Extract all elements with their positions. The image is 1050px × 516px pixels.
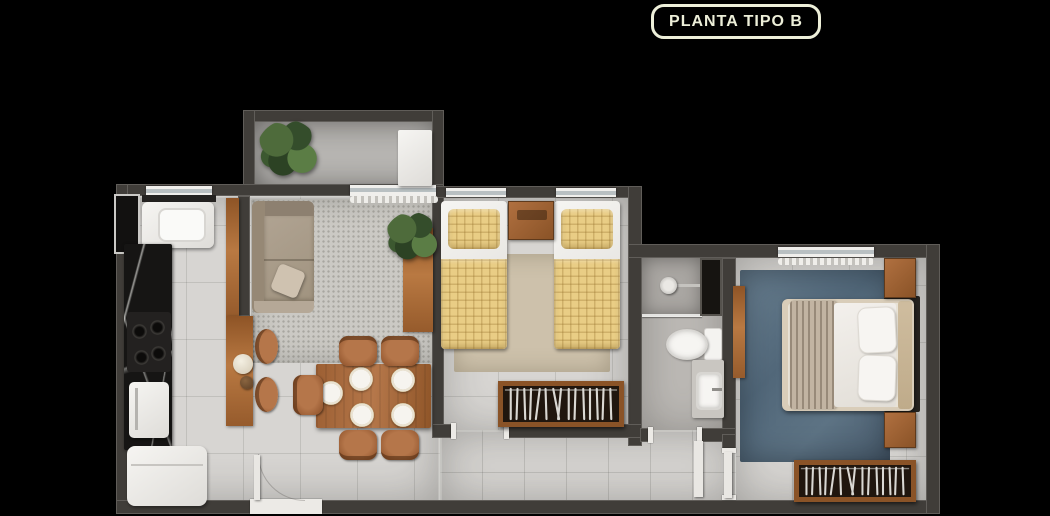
- vanity-faucet: [712, 388, 722, 391]
- kitchen-partial-wall: [238, 196, 250, 316]
- wardrobe-hangers-icon: [799, 465, 911, 497]
- cooktop-burner: [134, 350, 149, 365]
- decor-vase-small: [240, 376, 253, 389]
- single-bed-left: [441, 201, 507, 349]
- balcony-ac-unit: [398, 130, 432, 186]
- master-nightstand-bottom: [884, 412, 916, 448]
- bed-quilt: [554, 259, 620, 349]
- bathroom-door-leaf: [694, 441, 703, 497]
- bedroom2-nightstand: [508, 201, 554, 240]
- single-bed-right: [554, 201, 620, 349]
- bedroom2-window-right: [556, 188, 616, 197]
- dinner-plate: [391, 368, 415, 392]
- bed-quilt: [441, 259, 507, 349]
- shower-glass-line: [642, 314, 702, 317]
- living-room-plant: [384, 212, 440, 268]
- laundry-sink-basin: [158, 208, 206, 242]
- cooktop-burner: [150, 320, 165, 335]
- dining-chair: [339, 430, 377, 460]
- hallway-floor: [440, 430, 736, 502]
- sofa-armrest-bottom: [254, 301, 314, 313]
- dining-chair: [381, 430, 419, 460]
- living-curtain: [350, 196, 438, 203]
- nightstand-decor: [517, 210, 547, 220]
- dinner-plate: [391, 403, 415, 427]
- cooktop: [127, 312, 171, 372]
- master-nightstand-top: [884, 258, 916, 298]
- bedroom2-door-jamb-left: [451, 423, 456, 439]
- breakfast-bar-upper: [226, 198, 239, 316]
- bed-throw-blanket: [790, 301, 836, 409]
- cooktop-burner: [151, 346, 166, 361]
- master-door-leaf: [724, 452, 732, 498]
- plan-type-badge: PLANTA TIPO B: [651, 4, 821, 39]
- exterior-wall-bottom: [116, 500, 940, 514]
- entry-door-leaf: [254, 455, 260, 500]
- exterior-wall-right: [926, 244, 940, 514]
- balcony-sliding-door: [350, 185, 436, 196]
- floor-plan-canvas: PLANTA TIPO B: [0, 0, 1050, 516]
- master-bedroom-window: [778, 247, 874, 257]
- laundry-ledge: [142, 195, 216, 202]
- sofa: [252, 201, 314, 313]
- balcony-plant: [256, 120, 320, 186]
- bedroom2-window-left: [446, 188, 506, 197]
- master-side-desk: [733, 286, 745, 378]
- decor-vase-large: [233, 354, 253, 374]
- bed-pillow: [857, 354, 897, 401]
- dinner-plate: [349, 367, 373, 391]
- master-curtain: [778, 258, 874, 265]
- bed-pillow: [561, 209, 613, 249]
- toilet-bowl: [666, 329, 708, 360]
- dining-chair: [293, 375, 323, 415]
- kitchen-sink-handle: [135, 388, 138, 430]
- sofa-cushion-divider: [264, 259, 314, 261]
- bed-pillow: [448, 209, 500, 249]
- dinner-plate: [350, 403, 374, 427]
- service-shaft: [700, 258, 722, 316]
- dining-chair: [381, 336, 419, 366]
- bedroom2-bathroom-wall: [628, 186, 642, 446]
- vanity-basin: [696, 372, 722, 410]
- shower-head: [660, 277, 677, 294]
- entry-door: [250, 499, 322, 514]
- bar-stool: [255, 377, 278, 412]
- refrigerator-door-line: [131, 464, 203, 466]
- dining-chair: [339, 336, 377, 366]
- wardrobe-hangers-icon: [503, 386, 619, 422]
- bar-stool: [255, 329, 278, 364]
- bedroom2-wardrobe: [498, 381, 624, 427]
- cooktop-burner: [132, 324, 147, 339]
- bed-pillow: [857, 306, 897, 354]
- kitchen-window-top: [146, 186, 212, 195]
- plan-type-label: PLANTA TIPO B: [669, 13, 803, 31]
- balcony-wall-top: [243, 110, 444, 122]
- refrigerator: [127, 446, 207, 506]
- bathroom-door-jamb-left: [648, 427, 653, 443]
- master-wardrobe: [794, 460, 916, 502]
- bed-headboard: [898, 301, 912, 409]
- master-double-bed: [782, 299, 914, 411]
